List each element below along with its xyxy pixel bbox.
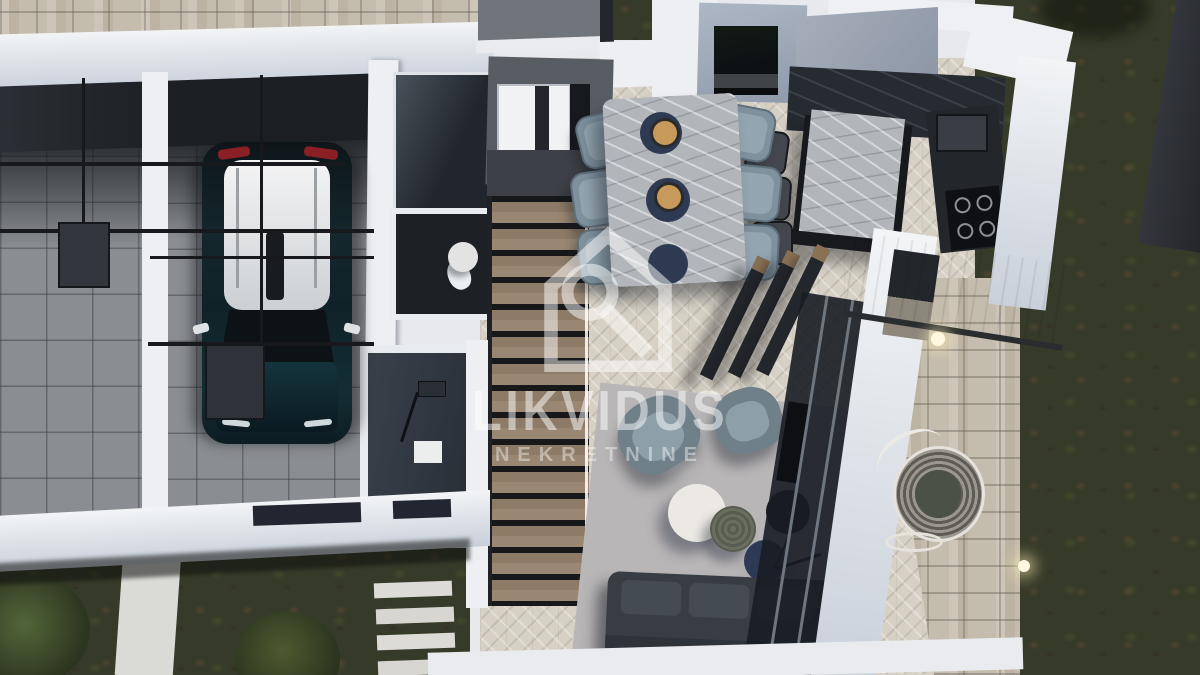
lower-window-slot xyxy=(253,502,362,526)
entry-door xyxy=(497,84,571,156)
pergola-post-base xyxy=(205,344,265,420)
pergola-post-base xyxy=(58,222,110,288)
pergola-rafter xyxy=(260,75,263,375)
wc-room xyxy=(390,208,502,320)
utility-room-glass xyxy=(393,72,495,212)
pendant-light xyxy=(650,118,680,148)
floorplan-render: LIKVIDUS NEKRETNINE xyxy=(0,0,1200,675)
kitchen-window xyxy=(714,26,778,95)
car-roof-box xyxy=(266,232,284,300)
garage-roof-overhang xyxy=(0,73,379,152)
pergola-beam xyxy=(0,229,374,233)
kitchen-sink xyxy=(936,114,988,152)
ground-light xyxy=(931,332,945,346)
pendant-light xyxy=(654,182,684,212)
stair-wall xyxy=(466,340,488,608)
coffee-table-gray xyxy=(710,506,756,552)
island-top xyxy=(799,109,905,240)
lower-window-slot xyxy=(393,499,452,519)
staircase xyxy=(487,196,589,606)
table-decor-navy xyxy=(648,244,688,284)
side-door-frame xyxy=(600,0,614,42)
side-table xyxy=(448,242,478,272)
hanging-egg-chair xyxy=(893,446,985,542)
pergola-rafter xyxy=(82,78,85,236)
pergola-beam xyxy=(0,162,345,166)
ground-light xyxy=(1018,560,1030,572)
carport-partition-wall xyxy=(142,72,168,524)
